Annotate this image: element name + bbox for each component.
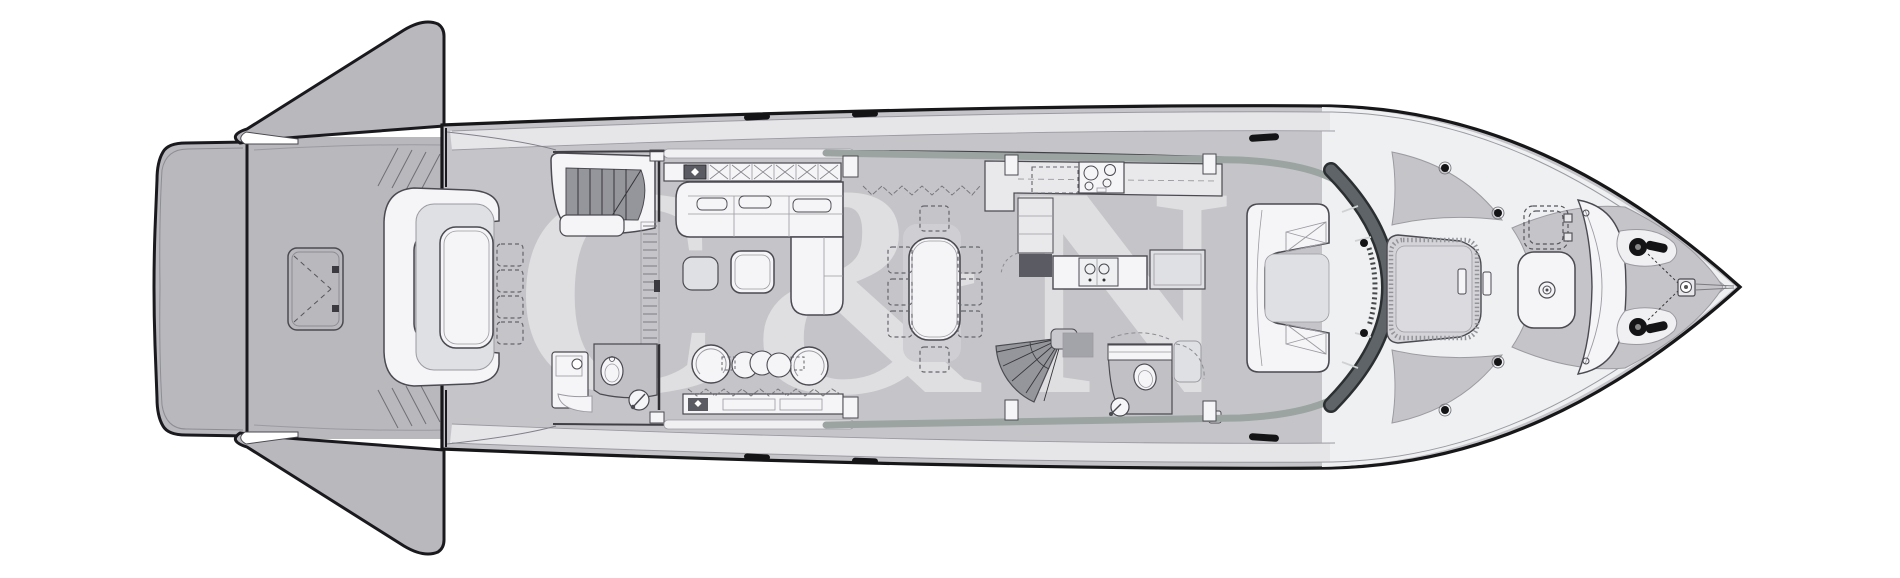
vanity xyxy=(1108,345,1172,360)
prep-counter xyxy=(1150,250,1205,289)
salon-sideboard xyxy=(664,163,841,181)
galley-cabinets xyxy=(1018,198,1053,253)
helm-settee xyxy=(1247,204,1329,372)
deck-plan-drawing: C&N xyxy=(0,0,1900,578)
galley-island xyxy=(1053,250,1205,289)
aft-deck-table xyxy=(440,227,493,348)
basin xyxy=(1111,398,1129,416)
ottoman xyxy=(683,257,718,290)
wiper-motor xyxy=(1360,329,1368,337)
door-handle xyxy=(654,280,660,292)
foredeck-sunpad xyxy=(1387,235,1491,343)
yacht-deck-plan-canvas: C&N xyxy=(0,0,1900,578)
flybridge-stairs xyxy=(551,153,655,236)
cooktop xyxy=(1079,162,1124,193)
galley-sink xyxy=(1079,258,1118,286)
tender-garage-hatch xyxy=(288,248,343,330)
dining-table xyxy=(909,238,960,340)
head-door xyxy=(1174,341,1201,382)
fold-down-bulwark-bottom xyxy=(235,433,444,554)
sink xyxy=(572,359,582,369)
wiper-motor xyxy=(1360,239,1368,247)
lower-sideboard xyxy=(683,394,843,414)
swim-platform xyxy=(154,142,247,436)
fold-down-bulwark-top xyxy=(235,22,444,143)
dishwasher xyxy=(1019,254,1052,277)
